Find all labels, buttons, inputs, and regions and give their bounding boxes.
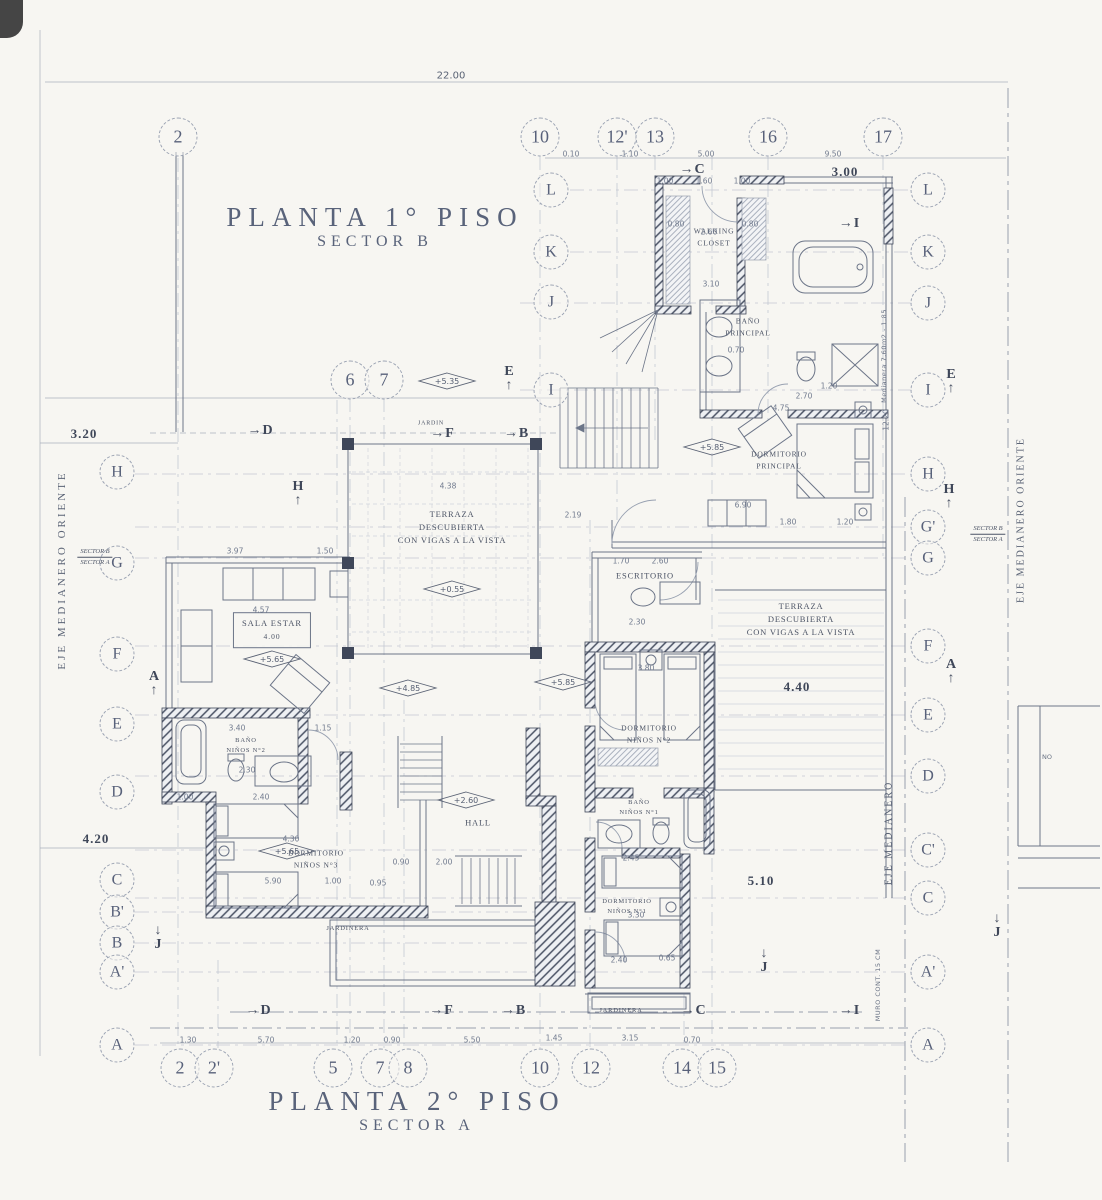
- elevation-value: +2.60: [436, 791, 496, 809]
- closet-shelves: [598, 196, 766, 766]
- grid-bubble-right-Cp: C': [911, 833, 946, 868]
- dim-label: 1.50: [317, 547, 334, 556]
- section-marker-A: A↑: [946, 658, 956, 686]
- arrow-up-icon: ↑: [945, 497, 952, 511]
- room-bano-principal: BAÑO PRINCIPAL: [725, 315, 770, 338]
- grid-bubble-bottom-5: 5: [314, 1049, 353, 1088]
- grid-bubble-right-L: L: [911, 173, 946, 208]
- dim-label: 1.00: [734, 177, 751, 186]
- elevation-value: +0.55: [422, 580, 482, 598]
- plan1-title-line1: PLANTA 1° PISO: [226, 202, 523, 233]
- section-marker-J: ↓J: [155, 924, 162, 952]
- section-marker-D: →D: [247, 424, 272, 438]
- room-dormitorio-principal: DORMITORIO PRINCIPAL: [751, 448, 807, 471]
- grid-bubble-innerleft-K: K: [534, 235, 569, 270]
- bathtub-principal: [793, 241, 873, 293]
- room-bano-ninos2: BAÑO NIÑOS N°2: [226, 736, 265, 756]
- toilet-principal: [797, 357, 815, 381]
- bed-ninos3-a: [214, 804, 298, 838]
- arrow-right-icon: →: [679, 163, 693, 177]
- arrow-down-icon: ↓: [155, 924, 162, 938]
- plan1-title: PLANTA 1° PISO SECTOR B: [226, 202, 523, 251]
- grid-bubble-bottom-15: 15: [698, 1049, 737, 1088]
- grid-bubble-mid-7: 7: [365, 361, 404, 400]
- grid-bubble-left-F: F: [100, 637, 135, 672]
- arrow-right-icon: →: [680, 1004, 694, 1018]
- room-bano-ninos1: BAÑO NIÑOS N°1: [619, 798, 658, 818]
- grid-bubble-innerleft-J: J: [534, 285, 569, 320]
- section-marker-H: H↑: [944, 483, 955, 511]
- dim-label: 1.00: [177, 793, 194, 802]
- desk-chair: [631, 588, 655, 606]
- section-marker-A: A↑: [149, 670, 159, 698]
- dim-label: 3.80: [638, 664, 655, 673]
- section-marker-D: →D: [245, 1004, 270, 1018]
- grid-bubble-innerleft-I: I: [534, 373, 569, 408]
- dim-label: 3.40: [229, 724, 246, 733]
- dim-label: 9.50: [825, 150, 842, 159]
- dim-label: 5.10: [748, 873, 775, 889]
- dim-label: 0.90: [384, 1036, 401, 1045]
- elevation-marker: +5.85: [533, 673, 593, 691]
- vanity-ninos1: [598, 820, 640, 848]
- sector-split-left: SECTOR B SECTOR A: [77, 547, 112, 568]
- arrow-up-icon: ↑: [506, 379, 513, 393]
- room-dormitorio-ninos2: DORMITORIO NIÑOS N°2: [621, 722, 677, 745]
- section-marker-E: E↑: [504, 365, 513, 393]
- sofa-2: [181, 610, 212, 682]
- elevation-value: +5.35: [417, 372, 477, 390]
- note-adjacent-sheet: NO: [1042, 753, 1052, 761]
- grid-bubble-left-A: A: [100, 1028, 135, 1063]
- plan2-title-line2: SECTOR A: [268, 1117, 565, 1135]
- section-marker-B: →B: [501, 1004, 525, 1018]
- room-terraza-central: TERRAZA DESCUBIERTA CON VIGAS A LA VISTA: [398, 508, 507, 548]
- vanity-ninos2: [255, 756, 311, 786]
- dim-label: 3.20: [71, 426, 98, 442]
- arrow-up-icon: ↑: [294, 494, 301, 508]
- dim-label: 1.70: [613, 557, 630, 566]
- elevation-marker: +2.60: [436, 791, 496, 809]
- grid-bubble-bottom-2p: 2': [195, 1049, 234, 1088]
- note-medianera: Medianera 7,60m2 - 1.85: [880, 309, 888, 403]
- dim-label: 2.70: [796, 392, 813, 401]
- sector-b-label: SECTOR B: [77, 547, 112, 558]
- toilet-ninos1: [653, 822, 669, 844]
- grid-bubble-top-16: 16: [749, 118, 788, 157]
- section-marker-J: ↓J: [761, 947, 768, 975]
- dim-label: 0.65: [659, 954, 676, 963]
- grid-bubble-right-C: C: [911, 881, 946, 916]
- dim-label: 4.30: [283, 835, 300, 844]
- grid-bubble-bottom-12: 12: [572, 1049, 611, 1088]
- elevation-marker: +5.85: [682, 438, 742, 456]
- section-marker-C: →C: [680, 1004, 705, 1018]
- dim-label: 3.00: [832, 164, 859, 180]
- dim-label: 4.20: [83, 831, 110, 847]
- grid-bubble-right-G: G: [911, 541, 946, 576]
- room-sala-estar-dim: 4.00: [242, 631, 302, 643]
- grid-bubble-right-Gp: G': [911, 510, 946, 545]
- arrow-right-icon: →: [839, 217, 853, 231]
- columns: [342, 438, 542, 659]
- grid-bubble-top-2: 2: [159, 118, 198, 157]
- section-marker-B: →B: [504, 427, 528, 441]
- dim-label: 1.30: [180, 1036, 197, 1045]
- arrow-right-icon: →: [501, 1004, 515, 1018]
- bed-principal: [797, 424, 873, 498]
- grid-bubble-left-E: E: [100, 707, 135, 742]
- dim-label: 2.40: [253, 793, 270, 802]
- dim-label: 2.40: [611, 956, 628, 965]
- dim-label: 5.90: [265, 877, 282, 886]
- grid-bubble-bottom-8: 8: [389, 1049, 428, 1088]
- dim-label: 2.60: [701, 228, 718, 237]
- shower: [832, 344, 878, 386]
- section-marker-F: →F: [430, 427, 454, 441]
- dim-label: 2.19: [565, 511, 582, 520]
- grid-bubble-right-D: D: [911, 759, 946, 794]
- dim-label: 2.30: [629, 618, 646, 627]
- bathtub-ninos2: [176, 720, 206, 784]
- grid-bubble-right-J: J: [911, 286, 946, 321]
- sector-b-label: SECTOR B: [970, 524, 1005, 535]
- sector-split-right: SECTOR B SECTOR A: [970, 524, 1005, 545]
- scan-corner-artifact: [0, 0, 23, 38]
- elevation-marker: +5.65: [257, 842, 317, 860]
- arrow-up-icon: ↑: [151, 684, 158, 698]
- dim-label: 0.70: [684, 1036, 701, 1045]
- grid-bubble-left-Bp: B': [100, 895, 135, 930]
- grid-bubble-right-I: I: [911, 373, 946, 408]
- bed-ninos1-a: [602, 856, 682, 888]
- dim-label: 5.00: [698, 150, 715, 159]
- nightstand-3: [214, 842, 234, 860]
- grid-bubble-right-E: E: [911, 698, 946, 733]
- dim-label: 2.30: [239, 766, 256, 775]
- dim-label: 2.45: [623, 854, 640, 863]
- section-marker-I: →I: [839, 217, 859, 231]
- dim-label: 1.15: [315, 724, 332, 733]
- plan1-title-line2: SECTOR B: [226, 233, 523, 251]
- arrow-down-icon: ↓: [761, 947, 768, 961]
- dim-label: 1.00: [657, 177, 674, 186]
- dim-label: 0.80: [742, 220, 759, 229]
- grid-bubble-right-H: H: [911, 457, 946, 492]
- dim-label: 1.45: [546, 1034, 563, 1043]
- elevation-marker: +5.35: [417, 372, 477, 390]
- room-sala-estar-label: SALA ESTAR: [242, 617, 302, 631]
- dim-label: 0.90: [393, 858, 410, 867]
- dim-label: 22.00: [437, 71, 466, 82]
- walls-hatched: [162, 176, 893, 988]
- arrow-right-icon: →: [247, 424, 261, 438]
- grid-bubble-top-17: 17: [864, 118, 903, 157]
- grid-bubble-right-F: F: [911, 629, 946, 664]
- elevation-marker: +5.65: [242, 650, 302, 668]
- section-marker-E: E↑: [946, 368, 955, 396]
- dim-label: 0.80: [668, 220, 685, 229]
- bed-ninos3-b: [214, 872, 298, 908]
- arrow-right-icon: →: [245, 1004, 259, 1018]
- dim-label: 3.10: [703, 280, 720, 289]
- section-marker-F: →F: [429, 1004, 453, 1018]
- room-sala-estar: SALA ESTAR 4.00: [233, 612, 311, 648]
- sector-a-label: SECTOR A: [77, 558, 112, 568]
- arrow-up-icon: ↑: [948, 382, 955, 396]
- dim-label: 4.38: [440, 482, 457, 491]
- dim-label: 3.30: [628, 911, 645, 920]
- dimension-lines: [40, 30, 1008, 1056]
- dim-label: 3.15: [622, 1034, 639, 1043]
- dim-label: 6.90: [735, 501, 752, 510]
- dim-label: 1.20: [344, 1036, 361, 1045]
- plan2-title-line1: PLANTA 2° PISO: [268, 1086, 565, 1117]
- dim-label: 2.60: [652, 557, 669, 566]
- axis-left-eje-medianero-oriente: EJE MEDIANERO ORIENTE: [56, 470, 68, 669]
- room-terraza-derecha: TERRAZA DESCUBIERTA CON VIGAS A LA VISTA: [747, 600, 856, 640]
- dim-label: 0.70: [728, 346, 745, 355]
- room-escritorio: ESCRITORIO: [616, 569, 674, 582]
- dim-label: 1.20: [837, 518, 854, 527]
- arrow-down-icon: ↓: [994, 912, 1001, 926]
- grid-bubble-right-A: A: [911, 1028, 946, 1063]
- elevation-marker: +4.85: [378, 679, 438, 697]
- section-marker-I: →I: [839, 1004, 859, 1018]
- axis-rightouter-eje-medianero-oriente: EJE MEDIANERO ORIENTE: [1016, 437, 1027, 603]
- nightstand-2: [660, 898, 682, 916]
- dim-label: 4.57: [253, 606, 270, 615]
- bed-ninos1-b: [604, 920, 682, 956]
- grid-bubble-right-Ap: A': [911, 955, 946, 990]
- dim-label: 0.10: [563, 150, 580, 159]
- dim-label: 1.20: [821, 382, 838, 391]
- dim-label: 2.00: [436, 858, 453, 867]
- arrow-right-icon: →: [429, 1004, 443, 1018]
- grid-bubble-top-10: 10: [521, 118, 560, 157]
- section-marker-C: →C: [679, 163, 704, 177]
- elevation-value: +4.85: [378, 679, 438, 697]
- section-marker-J: ↓J: [994, 912, 1001, 940]
- blueprint-sheet: PLANTA 1° PISO SECTOR B PLANTA 2° PISO S…: [0, 0, 1102, 1200]
- elevation-value: +5.85: [682, 438, 742, 456]
- grid-bubble-bottom-10: 10: [521, 1049, 560, 1088]
- arrow-right-icon: →: [839, 1004, 853, 1018]
- armchair-small: [330, 571, 348, 597]
- dim-label: 5.70: [258, 1036, 275, 1045]
- grid-bubble-top-13: 13: [636, 118, 675, 157]
- grid-bubble-left-C: C: [100, 863, 135, 898]
- arrow-up-icon: ↑: [948, 672, 955, 686]
- elevation-value: +5.65: [242, 650, 302, 668]
- grid-bubble-left-D: D: [100, 775, 135, 810]
- dim-label: 1.00: [325, 877, 342, 886]
- room-jardinera-inf: JARDINERA: [599, 1006, 642, 1016]
- axis-right-eje-medianero: EJE MEDIANERO: [884, 781, 895, 886]
- elevation-value: +5.65: [257, 842, 317, 860]
- grid-bubble-left-H: H: [100, 455, 135, 490]
- desk: [660, 582, 700, 604]
- sector-a-label: SECTOR A: [970, 535, 1005, 545]
- bathtub-ninos1: [684, 790, 710, 848]
- elevation-value: +5.85: [533, 673, 593, 691]
- dim-label: 5.50: [464, 1036, 481, 1045]
- section-marker-H: H↑: [293, 480, 304, 508]
- dim-label: 1.80: [780, 518, 797, 527]
- elevation-marker: +0.55: [422, 580, 482, 598]
- grid-bubble-bottom-14: 14: [663, 1049, 702, 1088]
- sofa: [223, 568, 315, 600]
- note-muro-contencion: MURO CONT. 15 CM: [874, 949, 882, 1021]
- arrow-right-icon: →: [430, 427, 444, 441]
- arrow-right-icon: →: [504, 427, 518, 441]
- plan2-title: PLANTA 2° PISO SECTOR A: [268, 1086, 565, 1135]
- dim-label: 12.20: [882, 409, 891, 430]
- dim-label: 4.40: [784, 679, 811, 695]
- grid-bubble-left-Ap: A': [100, 955, 135, 990]
- dim-label: 0.95: [370, 879, 387, 888]
- grid-bubble-right-K: K: [911, 235, 946, 270]
- dim-label: 1.10: [622, 150, 639, 159]
- dim-label: 4.75: [773, 404, 790, 413]
- dim-label: 3.97: [227, 547, 244, 556]
- room-jardinera-izq: JARDINERA: [326, 924, 369, 934]
- grid-bubble-innerleft-L: L: [534, 173, 569, 208]
- dim-label: 1.60: [696, 177, 713, 186]
- room-hall: HALL: [465, 816, 491, 829]
